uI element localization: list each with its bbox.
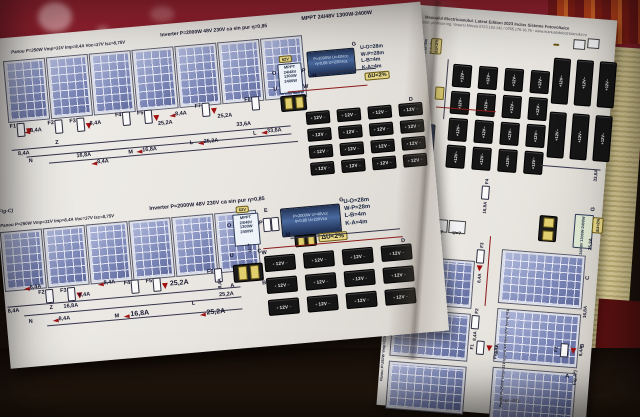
fuse-label: F4 xyxy=(484,179,489,185)
battery-terminal: − xyxy=(289,304,292,309)
current-label: 16,8A xyxy=(582,305,589,318)
wire xyxy=(485,236,491,306)
fuse-label: F3 xyxy=(60,288,68,303)
solar-panel xyxy=(218,40,263,103)
ornament xyxy=(38,2,72,32)
wire xyxy=(541,165,601,171)
current-label: 25,2A xyxy=(206,308,225,317)
solar-panel xyxy=(175,44,220,107)
figure-label: (Fig-C) xyxy=(0,208,13,215)
current-label: 8,4A xyxy=(78,292,90,299)
battery-12v: +12V− xyxy=(400,119,425,134)
diode-icon xyxy=(486,345,492,351)
diode-icon xyxy=(476,265,482,271)
fuse xyxy=(131,279,140,294)
arrow-icon xyxy=(198,141,204,146)
current-label: 8,4A xyxy=(30,127,42,134)
battery-12v: +12V− xyxy=(574,59,595,106)
node-letter: O xyxy=(272,70,277,76)
current-label: 8,4A xyxy=(476,273,482,283)
fuse-group: F5 xyxy=(137,109,161,125)
arrow-icon xyxy=(24,130,30,135)
fuse-label: F4 xyxy=(115,112,123,127)
battery-label: +12V− xyxy=(485,72,491,84)
fuse-group: F7 xyxy=(194,102,218,118)
battery-terminal: + xyxy=(310,115,313,120)
battery-label: 12V xyxy=(344,112,353,118)
fuse xyxy=(541,230,553,241)
unknown-voltage: U=? xyxy=(247,243,253,252)
battery-label: 12V xyxy=(375,109,384,115)
battery-label: +12V− xyxy=(483,99,489,111)
battery-12v: +12V− xyxy=(303,250,335,269)
battery-terminal: − xyxy=(355,129,358,134)
battery-terminal: − xyxy=(420,157,423,162)
current-label: 8,4A xyxy=(103,279,115,286)
arrow-icon xyxy=(123,314,129,319)
battery-terminal: + xyxy=(311,257,314,262)
arrow-icon xyxy=(261,131,267,136)
battery-terminal: − xyxy=(328,300,331,305)
battery-terminal: − xyxy=(386,126,389,131)
battery-terminal: + xyxy=(341,113,344,118)
battery-label: 12V xyxy=(355,275,364,281)
fuse-group: F4 xyxy=(115,111,132,126)
battery-12v: +12V− xyxy=(529,70,550,94)
fuse-group: F4 xyxy=(124,279,141,294)
cable-run-lengths: U-O=28m W-P=28m L-B=4m K-A=4m xyxy=(360,43,386,71)
battery-terminal: + xyxy=(407,158,410,163)
battery-12v: +12V− xyxy=(307,127,332,142)
node-letter: U xyxy=(230,253,234,259)
battery-12v: +12V− xyxy=(592,115,613,162)
node-letter: C xyxy=(585,276,591,280)
fuse-label: F2 xyxy=(38,290,46,305)
current-label: 8,4A xyxy=(578,347,584,357)
battery-label: +12V− xyxy=(511,74,517,86)
solar-panel xyxy=(47,55,92,118)
current-label: 8,4A xyxy=(18,150,30,157)
solar-panel xyxy=(90,51,135,114)
battery-12v: +12V− xyxy=(403,153,428,168)
figure-label: Fig.A*) xyxy=(572,370,578,385)
node-letter: L xyxy=(192,300,196,306)
solar-panel xyxy=(1,230,46,291)
current-label: 33,6A xyxy=(267,127,282,134)
voltmeter: U=? xyxy=(448,220,466,234)
arrow-icon xyxy=(200,313,206,318)
node-letter: G xyxy=(352,41,357,47)
battery-12v: +12V− xyxy=(372,155,397,170)
battery-12v: +12V− xyxy=(338,124,363,139)
book-photo: Manualul Electricianului. Latest Edition… xyxy=(0,0,640,417)
battery-label: 12V xyxy=(276,260,285,266)
battery-terminal: − xyxy=(402,250,405,255)
battery-12v: +12V− xyxy=(475,93,496,117)
battery-label: 12V xyxy=(406,107,415,113)
battery-label: +12V− xyxy=(581,77,587,89)
battery-terminal: + xyxy=(403,107,406,112)
battery-12v: +12V− xyxy=(370,138,395,153)
fuse xyxy=(122,111,131,126)
battery-12v: +12V− xyxy=(501,95,522,119)
solar-panel xyxy=(4,59,49,122)
battery-12v: +12V− xyxy=(527,97,548,121)
battery-terminal: − xyxy=(323,114,326,119)
battery-12v: +12V− xyxy=(523,151,544,175)
battery-terminal: + xyxy=(276,305,279,310)
battery-12v: +12V− xyxy=(306,110,331,125)
arrow-icon xyxy=(24,287,30,292)
run-length: K-A=4m xyxy=(345,219,368,227)
battery-terminal: − xyxy=(357,146,360,151)
battery-terminal: − xyxy=(287,282,290,287)
battery-label: 12V xyxy=(357,297,366,303)
battery-terminal: + xyxy=(272,261,275,266)
battery-terminal: − xyxy=(406,293,409,298)
battery-12v: +12V− xyxy=(551,58,572,105)
battery-12v: +12V− xyxy=(450,91,471,115)
battery-terminal: − xyxy=(416,106,419,111)
cable-run-lengths: U-O=28m W-P=28m L-B=4m K-A=4m xyxy=(343,197,372,228)
battery-label: 12V xyxy=(314,257,323,263)
fuse-label: F8 xyxy=(244,97,252,112)
run-length: W-P=28m xyxy=(344,204,371,212)
fuse-label: F5 xyxy=(137,110,145,125)
battery-12v: +12V− xyxy=(344,269,376,288)
battery-label: +12V− xyxy=(600,133,606,145)
left-page: Panou P=250W Vmp=31V Imp=8,4A Voc=37V Is… xyxy=(0,2,449,369)
current-label: 8,4A xyxy=(218,278,224,289)
fuse-group: F4 16,8A xyxy=(480,178,491,214)
fuse-label: F1 xyxy=(9,123,16,130)
battery-12v: +12V− xyxy=(341,158,366,173)
battery-12v: +12V− xyxy=(384,287,416,306)
arrow-icon xyxy=(169,113,175,118)
battery-terminal: + xyxy=(352,276,355,281)
battery-label: 12V xyxy=(318,165,327,171)
battery-12v: +12V− xyxy=(369,122,394,137)
battery-terminal: + xyxy=(354,298,357,303)
battery-terminal: + xyxy=(343,130,346,135)
fuse xyxy=(202,102,211,117)
diode-icon xyxy=(162,283,169,290)
fuse xyxy=(153,277,162,292)
node-letter: P xyxy=(302,68,306,74)
current-label: 8,4A xyxy=(8,308,20,315)
voltage-drop-badge: ΔU<2% xyxy=(430,38,442,55)
solar-panel xyxy=(44,226,89,287)
battery-12v: +12V− xyxy=(452,64,473,88)
fuse-group: F2 8,4A xyxy=(470,308,481,341)
fuse xyxy=(251,96,260,111)
battery-label: 12V xyxy=(396,294,405,300)
battery-label: +12V− xyxy=(507,128,513,140)
battery-label: 12V xyxy=(316,149,325,155)
solar-panel xyxy=(499,250,585,308)
battery-12v: +12V− xyxy=(380,243,412,262)
battery-terminal: + xyxy=(315,301,318,306)
battery-terminal: − xyxy=(365,275,368,280)
battery-12v: +12V− xyxy=(310,161,335,176)
battery-12v: +12V− xyxy=(569,113,590,160)
battery-label: 12V xyxy=(277,282,286,288)
fuse xyxy=(77,117,86,132)
node-letter: O xyxy=(227,223,232,229)
battery-terminal: + xyxy=(312,132,315,137)
battery-bank: +12V−+12V−+12V−+12V−+12V−+12V− xyxy=(546,58,617,163)
fuse-label: F2 xyxy=(473,308,478,314)
battery-label: +12V− xyxy=(558,75,564,87)
battery-terminal: + xyxy=(373,127,376,132)
battery-label: 12V xyxy=(409,140,418,146)
current-label: 33,6A xyxy=(236,121,251,128)
battery-label: +12V− xyxy=(577,131,583,143)
battery-12v: +12V− xyxy=(382,265,414,284)
junction-box xyxy=(573,39,586,50)
voltage-drop-badge: ΔU<2% xyxy=(364,71,390,81)
battery-terminal: − xyxy=(367,297,370,302)
battery-label: 12V xyxy=(346,129,355,135)
node-letter: Z xyxy=(55,140,59,146)
battery-terminal: + xyxy=(346,164,349,169)
fuse-label: F3 xyxy=(69,118,77,133)
battery-12v: +12V− xyxy=(503,68,524,92)
arrow-icon xyxy=(98,282,104,287)
battery-label: 12V xyxy=(408,123,417,129)
node-letter: A xyxy=(230,283,234,289)
battery-terminal: + xyxy=(393,294,396,299)
node-letter: L xyxy=(253,130,257,136)
battery-label: 12V xyxy=(392,250,401,256)
arrow-icon xyxy=(53,318,59,323)
fuse-label: F3 xyxy=(479,242,484,248)
node-letter: N xyxy=(28,319,32,325)
fuse xyxy=(45,289,54,304)
fuse-group: F2 xyxy=(47,119,64,134)
battery-label: +12V− xyxy=(479,153,485,165)
battery-label: +12V− xyxy=(533,130,539,142)
battery-12v: +12V− xyxy=(447,118,468,142)
battery-terminal: + xyxy=(389,251,392,256)
current-label: 8,4A xyxy=(175,110,187,117)
battery-terminal: − xyxy=(389,160,392,165)
node-letter: U xyxy=(273,86,277,92)
fuse xyxy=(55,119,64,134)
battery-12v: +12V− xyxy=(497,149,518,173)
string-voltage-badge: 62V xyxy=(279,55,293,63)
battery-label: +12V− xyxy=(453,151,459,163)
current-label: 16,8A xyxy=(142,146,157,153)
current-label: 8,4A xyxy=(58,315,70,322)
current-label: 25,2A xyxy=(587,237,594,250)
fuse-label: F2 xyxy=(553,347,558,353)
mppt-controller: MPPT 24/48V 1300W 2400W xyxy=(232,213,261,247)
battery-bank: +12V−+12V−+12V−+12V−+12V−+12V−+12V−+12V−… xyxy=(445,64,550,175)
solar-panel xyxy=(133,47,178,110)
battery-terminal: − xyxy=(385,109,388,114)
battery-label: 12V xyxy=(377,126,386,132)
diode-icon xyxy=(570,348,576,354)
arrow-icon xyxy=(91,161,97,166)
node-letter: G xyxy=(590,207,596,212)
current-label: 16,8A xyxy=(76,152,91,159)
battery-terminal: + xyxy=(375,144,378,149)
battery-terminal: + xyxy=(406,141,409,146)
fuse xyxy=(471,315,480,330)
battery-label: +12V− xyxy=(537,76,543,88)
battery-12v: +12V− xyxy=(473,120,494,144)
current-label: 8,4A xyxy=(89,120,101,127)
string-voltage-badge: 62V xyxy=(235,205,249,213)
battery-terminal: − xyxy=(324,256,327,261)
battery-label: 12V xyxy=(394,272,403,278)
battery-label: 12V xyxy=(314,115,323,121)
battery-terminal: − xyxy=(328,165,331,170)
fuse-group: F2 8,4A xyxy=(553,342,584,358)
battery-label: +12V− xyxy=(505,155,511,167)
unknown-voltage: U=? xyxy=(452,230,461,236)
battery-terminal: − xyxy=(325,131,328,136)
fuse-holder xyxy=(233,262,264,283)
battery-terminal: − xyxy=(326,278,329,283)
battery-12v: +12V− xyxy=(367,105,392,120)
battery-12v: +12V− xyxy=(525,124,546,148)
fuse xyxy=(481,186,490,201)
fuse xyxy=(435,86,445,100)
battery-terminal: + xyxy=(315,166,318,171)
battery-label: 12V xyxy=(380,160,389,166)
fuse-label xyxy=(553,44,559,46)
arrow-icon xyxy=(136,149,142,154)
battery-12v: +12V− xyxy=(596,61,617,108)
battery-12v: +12V− xyxy=(478,66,499,90)
figure-label: Fig.A) xyxy=(492,346,498,359)
battery-12v: +12V− xyxy=(471,147,492,171)
battery-12v: +12V− xyxy=(546,111,567,158)
battery-label: 12V xyxy=(279,304,288,310)
current-label: 16,8A xyxy=(481,202,487,214)
solar-panel xyxy=(386,362,465,414)
battery-12v: +12V− xyxy=(339,141,364,156)
solar-panel xyxy=(87,222,132,283)
battery-label: 12V xyxy=(316,279,325,285)
battery-12v: +12V− xyxy=(401,136,426,151)
inverter-spec: Inverter P=2000W 48V 230V ca sin pur η=0… xyxy=(160,23,267,38)
node-letter: A xyxy=(565,373,569,379)
battery-terminal: − xyxy=(417,123,420,128)
battery-label: 12V xyxy=(353,253,362,259)
mppt-line: 2400W xyxy=(284,77,297,83)
battery-12v: +12V− xyxy=(305,272,337,291)
battery-label: +12V− xyxy=(455,124,461,136)
battery-12v: +12V− xyxy=(342,247,374,266)
battery-label: +12V− xyxy=(509,101,515,113)
battery-label: +12V− xyxy=(530,157,536,169)
fuse xyxy=(144,109,153,124)
battery-label: 12V xyxy=(315,132,324,138)
battery-terminal: − xyxy=(419,140,422,145)
battery-label: 12V xyxy=(378,143,387,149)
node-letter: N xyxy=(28,158,32,164)
current-label: 33,6A xyxy=(593,169,600,182)
battery-terminal: − xyxy=(285,260,288,265)
battery-12v: +12V− xyxy=(499,122,520,146)
battery-terminal: − xyxy=(354,112,357,117)
fuse xyxy=(271,217,280,232)
current-label: 25,2A xyxy=(219,291,234,298)
current-label: 25,2A xyxy=(158,120,173,127)
fuse xyxy=(476,340,485,355)
battery-label: +12V− xyxy=(459,70,465,82)
battery-label: 12V xyxy=(349,163,358,169)
battery-12v: +12V− xyxy=(307,294,339,313)
node-letter: M xyxy=(128,149,133,155)
battery-label: 12V xyxy=(411,157,420,163)
current-label: 25,2A xyxy=(203,138,218,145)
fuse-group: F3 8,4A xyxy=(474,242,485,283)
solar-panel xyxy=(129,218,174,279)
current-label: 8,4A xyxy=(30,284,42,291)
fuse-label: F4 xyxy=(124,280,132,295)
battery-terminal: + xyxy=(344,147,347,152)
junction-box xyxy=(587,38,600,49)
battery-terminal: + xyxy=(313,279,316,284)
battery-12v: +12V− xyxy=(266,275,298,294)
mppt-spec: MPPT 24/48V 1300W-2400W xyxy=(301,10,372,22)
node-letter: L xyxy=(190,140,194,146)
current-label: 8,4A xyxy=(97,158,109,165)
fuse-holder xyxy=(538,215,558,242)
fuse xyxy=(249,265,259,280)
fuse-group: F8 xyxy=(244,96,261,111)
battery-12v: +12V− xyxy=(398,102,423,117)
solar-panel xyxy=(172,215,217,276)
battery-terminal: − xyxy=(358,162,361,167)
battery-label: +12V− xyxy=(481,126,487,138)
fuse-label: F1 xyxy=(469,344,474,350)
mppt-line: 2400W xyxy=(240,228,253,234)
battery-12v: +12V− xyxy=(308,144,333,159)
battery-12v: +12V− xyxy=(345,291,377,310)
fuse xyxy=(237,266,247,281)
battery-12v: +12V− xyxy=(264,254,296,273)
fuse-label: F2 xyxy=(47,120,55,135)
battery-terminal: − xyxy=(404,271,407,276)
node-letter: Z xyxy=(49,305,53,311)
current-label: 16,8A xyxy=(63,303,78,310)
fuse-group: F5 xyxy=(145,277,169,293)
node-letter: M xyxy=(114,313,119,319)
current-label: 25,2A xyxy=(170,279,189,288)
battery-terminal: + xyxy=(313,149,316,154)
battery-12v: +12V− xyxy=(268,297,300,316)
battery-label: +12V− xyxy=(554,129,560,141)
battery-label: +12V− xyxy=(457,97,463,109)
fuse xyxy=(67,287,76,302)
fuse xyxy=(542,217,554,228)
fuse-label: F7 xyxy=(194,103,202,118)
fuse xyxy=(284,97,293,110)
battery-terminal: − xyxy=(388,143,391,148)
battery-terminal: − xyxy=(363,253,366,258)
battery-12v: +12V− xyxy=(445,145,466,169)
battery-terminal: + xyxy=(350,254,353,259)
battery-label: +12V− xyxy=(604,79,610,91)
node-letter: E xyxy=(264,208,268,214)
node-letter: C xyxy=(257,248,261,254)
battery-label: 12V xyxy=(318,300,327,306)
